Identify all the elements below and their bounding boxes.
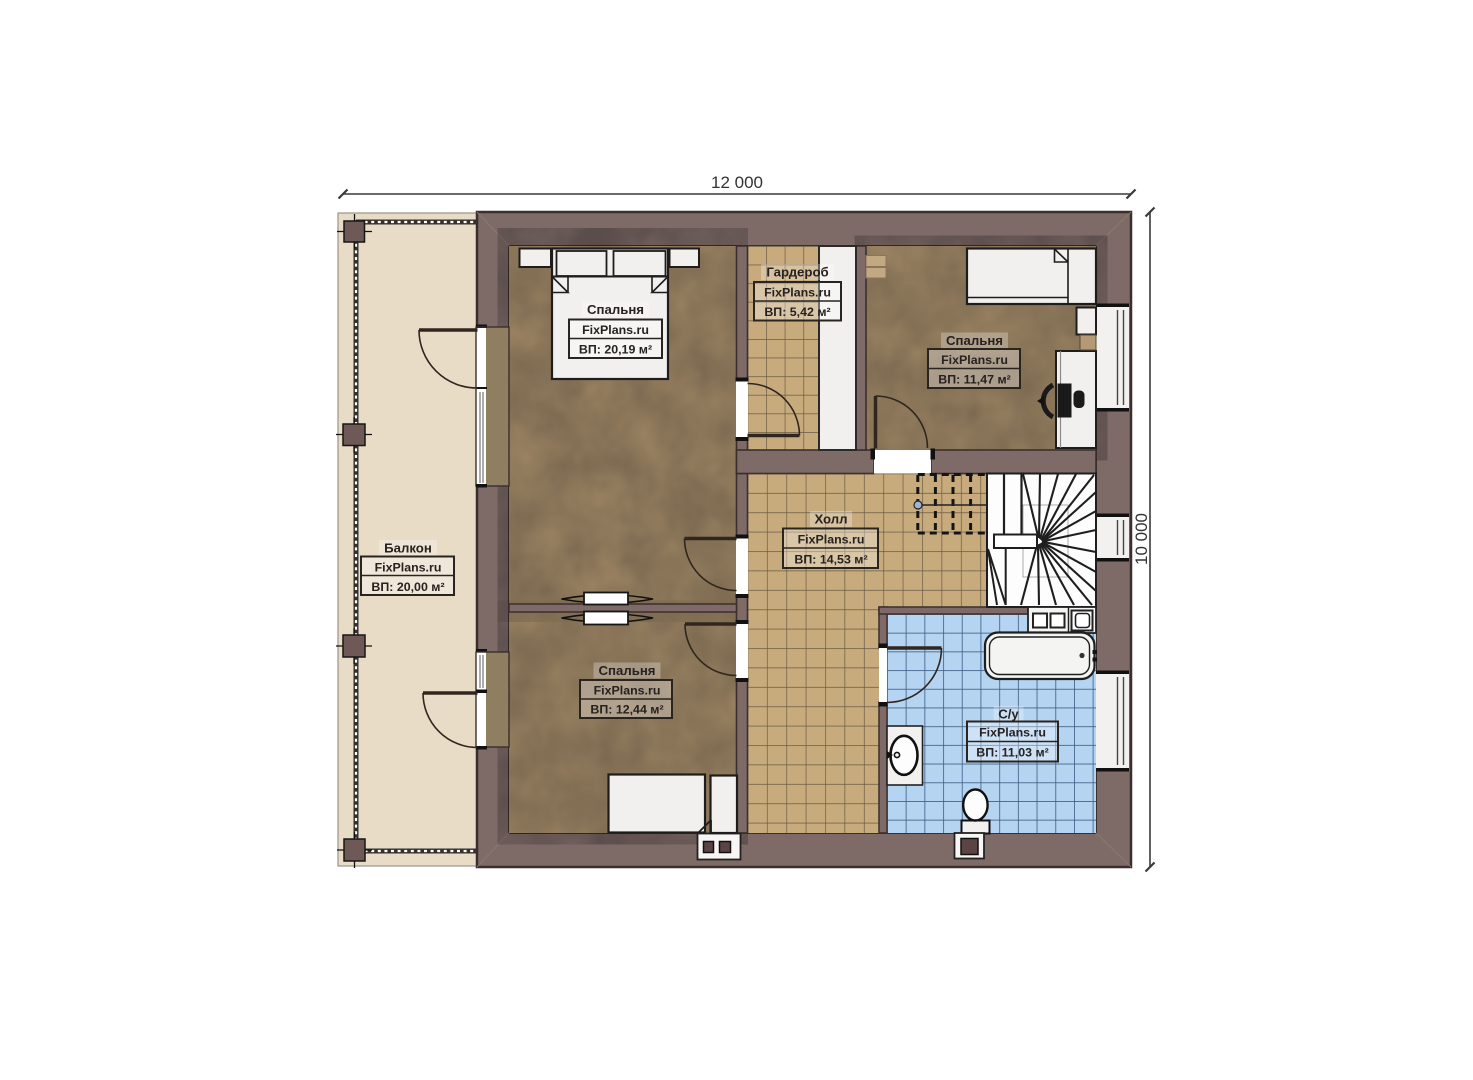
svg-text:Спальня: Спальня xyxy=(599,663,656,678)
svg-text:ВП: 5,42 м²: ВП: 5,42 м² xyxy=(764,305,830,319)
svg-text:FixPlans.ru: FixPlans.ru xyxy=(798,533,865,547)
svg-text:12 000: 12 000 xyxy=(711,173,763,192)
svg-text:ВП: 11,47 м²: ВП: 11,47 м² xyxy=(938,373,1010,387)
svg-text:ВП: 20,00 м²: ВП: 20,00 м² xyxy=(371,580,444,594)
svg-text:ВП: 11,03 м²: ВП: 11,03 м² xyxy=(976,746,1048,760)
svg-text:FixPlans.ru: FixPlans.ru xyxy=(594,684,661,698)
svg-text:10 000: 10 000 xyxy=(1132,513,1151,565)
svg-text:FixPlans.ru: FixPlans.ru xyxy=(764,286,831,300)
svg-text:FixPlans.ru: FixPlans.ru xyxy=(941,353,1008,367)
svg-text:FixPlans.ru: FixPlans.ru xyxy=(582,323,649,337)
svg-text:С/у: С/у xyxy=(998,707,1019,722)
svg-text:ВП: 12,44 м²: ВП: 12,44 м² xyxy=(590,703,663,717)
svg-text:Спальня: Спальня xyxy=(946,333,1003,348)
svg-text:Спальня: Спальня xyxy=(587,302,644,317)
svg-text:FixPlans.ru: FixPlans.ru xyxy=(375,561,442,575)
svg-text:Балкон: Балкон xyxy=(384,541,432,556)
svg-text:ВП: 14,53 м²: ВП: 14,53 м² xyxy=(794,553,867,567)
svg-text:Холл: Холл xyxy=(814,512,847,527)
svg-text:FixPlans.ru: FixPlans.ru xyxy=(979,726,1046,740)
svg-text:Гардероб: Гардероб xyxy=(766,265,828,280)
svg-text:ВП: 20,19 м²: ВП: 20,19 м² xyxy=(579,343,652,357)
